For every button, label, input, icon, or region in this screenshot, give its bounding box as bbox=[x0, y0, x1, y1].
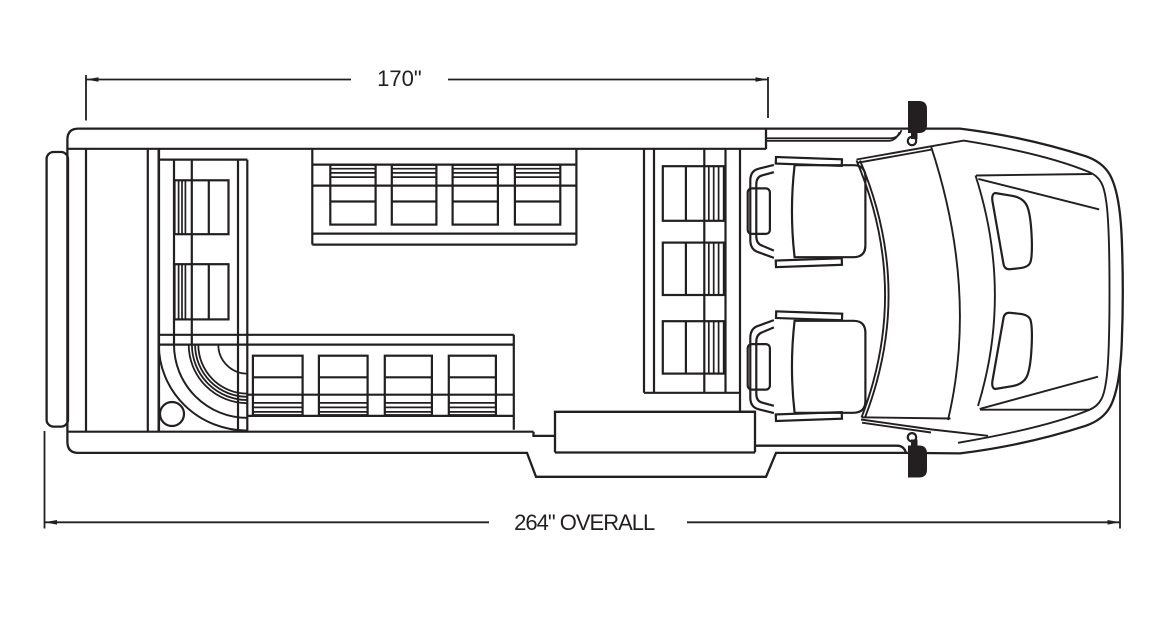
svg-text:264" OVERALL: 264" OVERALL bbox=[514, 510, 655, 535]
svg-text:170": 170" bbox=[377, 66, 422, 91]
